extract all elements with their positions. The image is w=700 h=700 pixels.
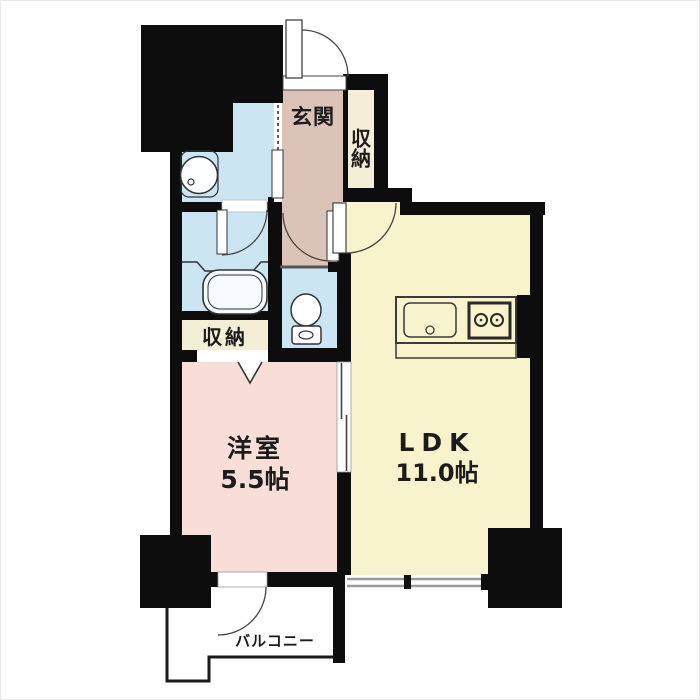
closet-door-mark xyxy=(238,362,262,383)
ldk-size: 11.0帖 xyxy=(356,459,518,488)
genkan-label: 玄関 xyxy=(282,101,344,131)
floor-plan: 玄関 収納 収納 洋室 5.5帖 LDK 11.0帖 バルコニー xyxy=(0,0,700,700)
bathroom-door xyxy=(217,200,267,255)
entrance-door-arc xyxy=(302,30,348,76)
entrance-door xyxy=(283,20,348,90)
ldk-label: LDK 11.0帖 xyxy=(356,428,518,488)
toilet-door xyxy=(268,211,342,272)
ldk-door-arc xyxy=(346,203,396,253)
western-room-size: 5.5帖 xyxy=(180,465,330,496)
wash-basin xyxy=(181,151,219,197)
ldk-name: LDK xyxy=(356,428,518,459)
ldk-door xyxy=(333,203,396,253)
western-room-name: 洋室 xyxy=(180,434,330,465)
balcony-door-arc xyxy=(218,587,266,635)
toilet xyxy=(291,294,321,344)
kitchen-counter xyxy=(396,297,516,358)
sliding-door xyxy=(337,362,351,472)
balcony-label: バルコニー xyxy=(211,630,339,651)
storage-mid-label: 収納 xyxy=(182,321,268,350)
bathtub xyxy=(182,262,268,314)
ldk-window xyxy=(347,575,481,589)
balcony-door xyxy=(218,572,267,635)
kitchen-sink xyxy=(404,303,456,337)
western-room-label: 洋室 5.5帖 xyxy=(180,434,330,495)
bathroom-door-arc xyxy=(222,210,267,255)
storage-top-label: 収納 xyxy=(345,102,375,194)
toilet-door-arc xyxy=(283,213,331,261)
